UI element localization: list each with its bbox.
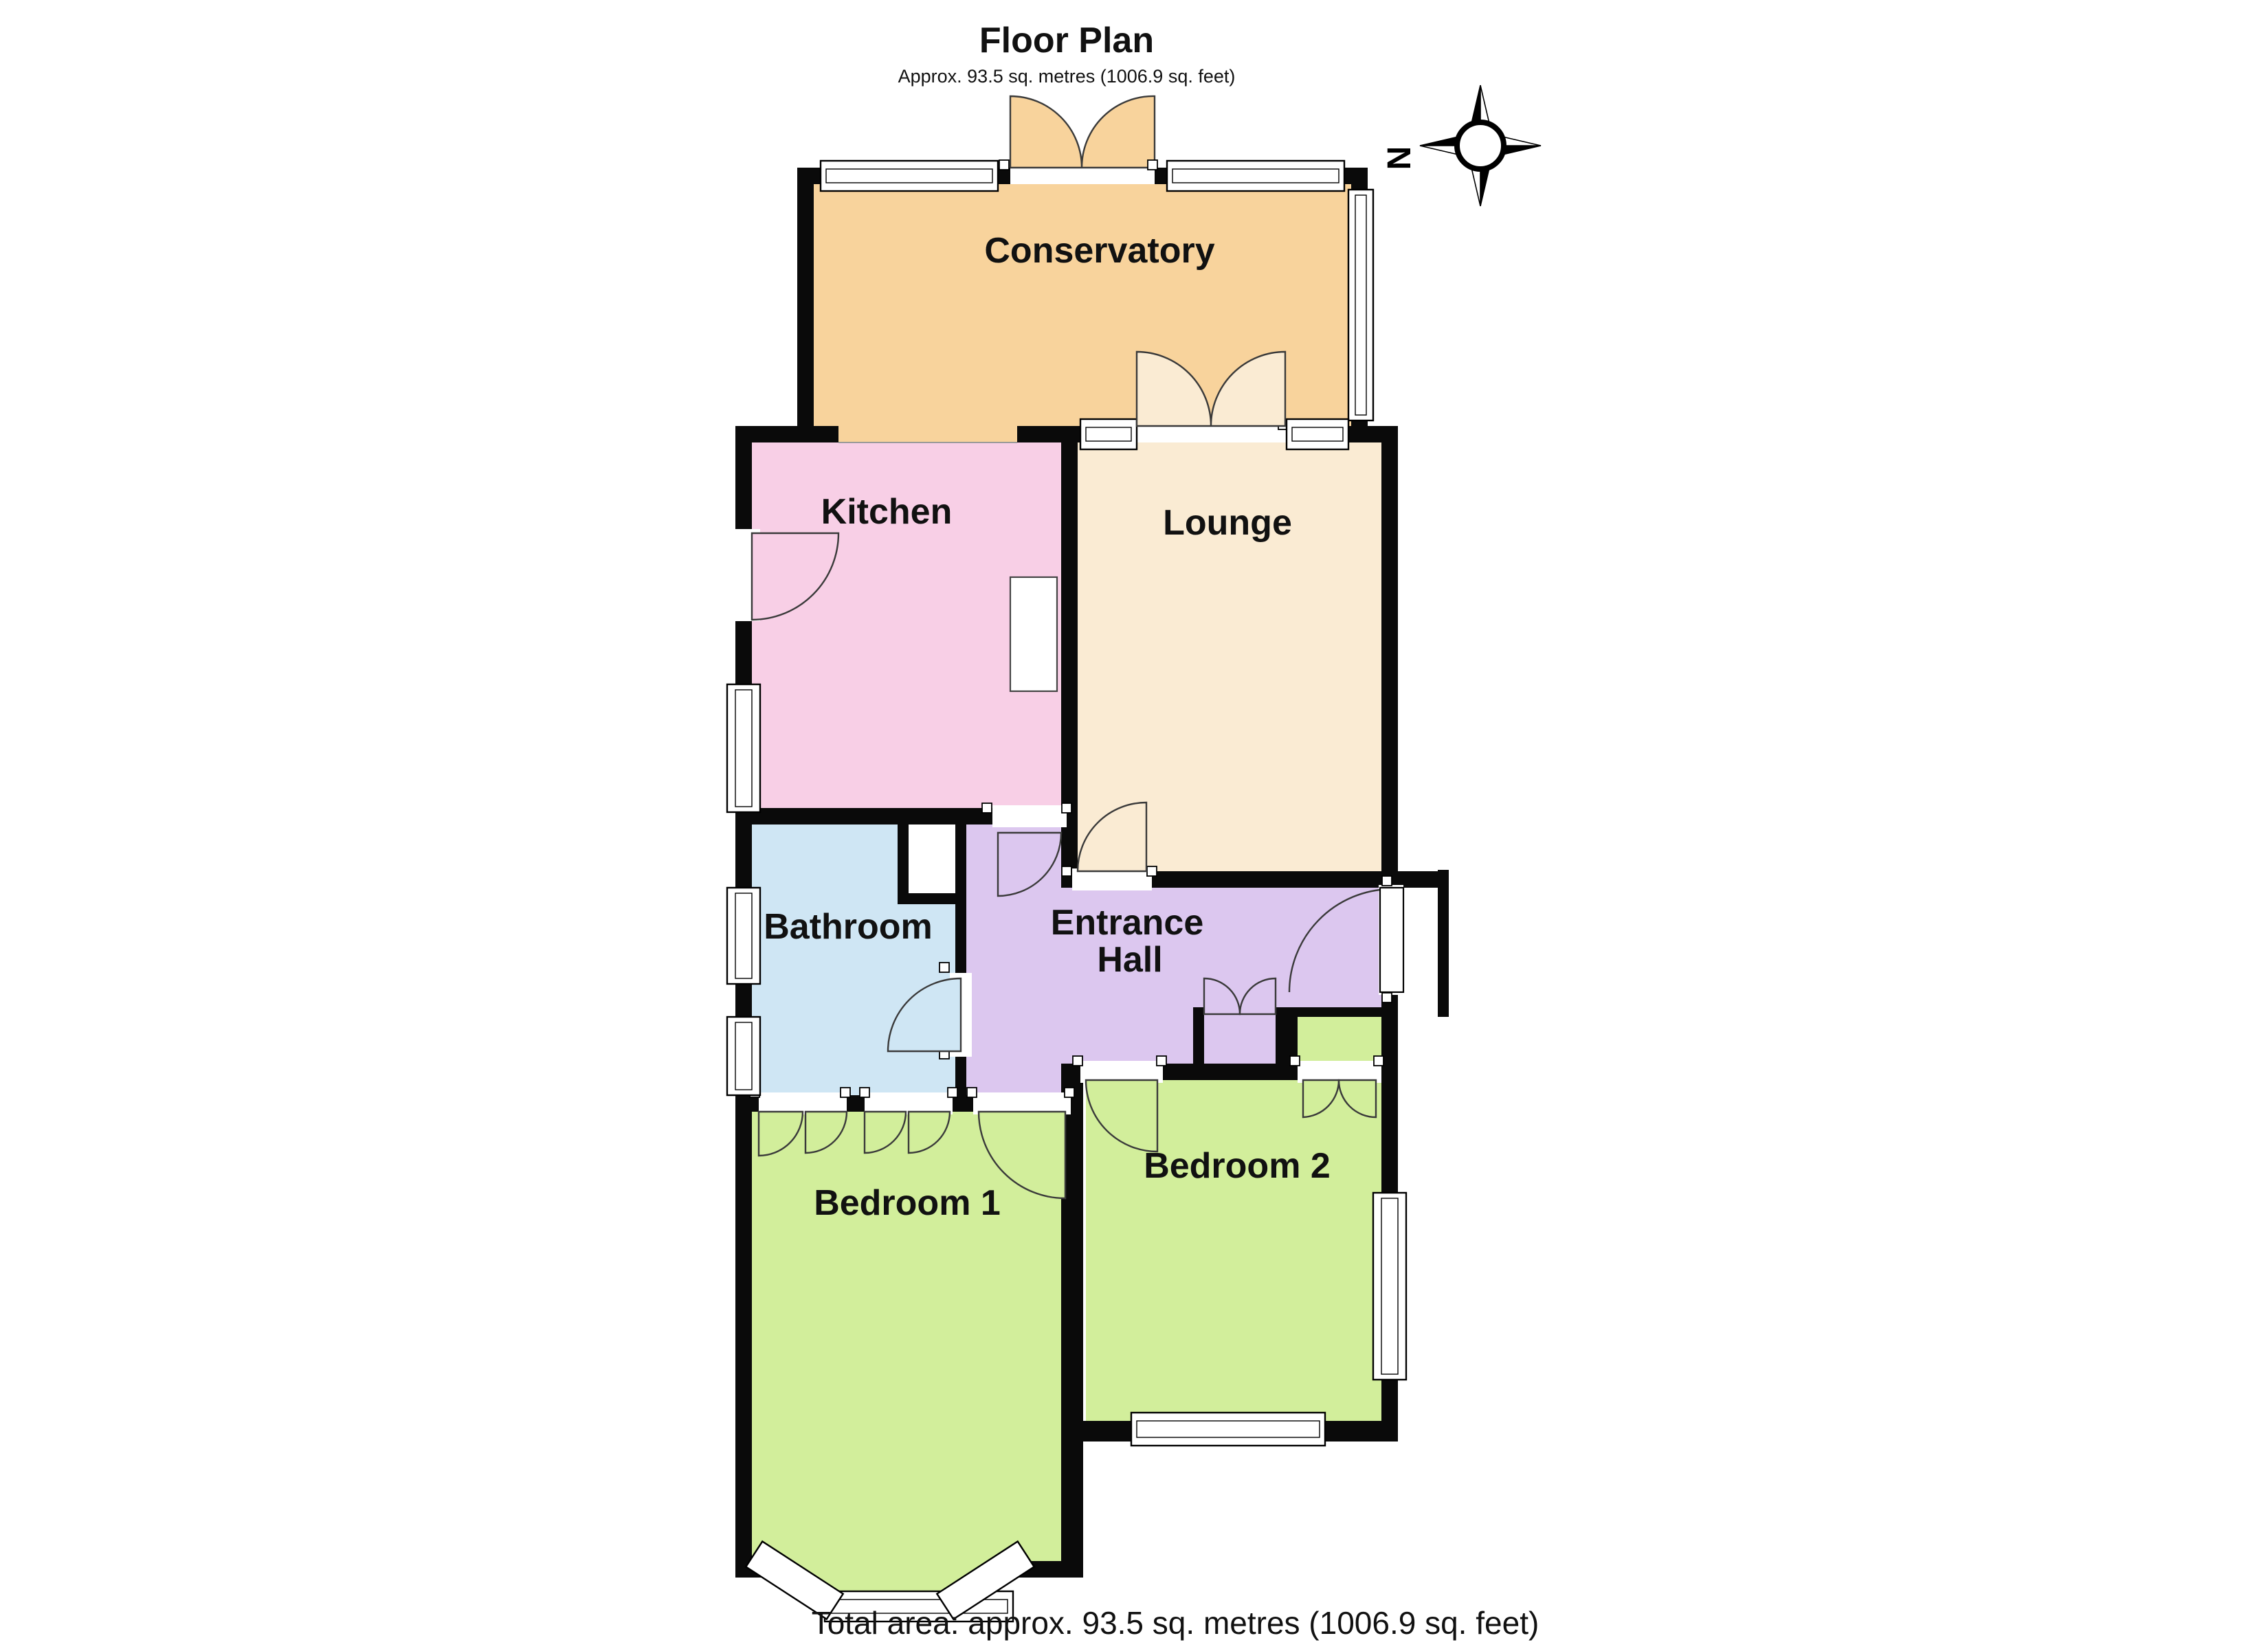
page-title: Floor Plan — [979, 21, 1154, 60]
room-label-entrance-hall-1: Entrance — [1051, 903, 1204, 943]
window-bedroom2-bottom — [1131, 1413, 1325, 1446]
total-area-text: Total area: approx. 93.5 sq. metres (100… — [812, 1605, 1539, 1641]
window-kitchen-left — [727, 684, 760, 812]
room-label-bathroom: Bathroom — [764, 907, 933, 947]
window-bedroom2-right — [1373, 1193, 1406, 1380]
window-conservatory-right — [1348, 190, 1373, 420]
window-conservatory-top-right — [1167, 161, 1344, 191]
room-label-bedroom1: Bedroom 1 — [814, 1183, 1001, 1223]
window-bathroom-left-2 — [727, 1017, 760, 1095]
kitchen-counter — [1010, 577, 1057, 691]
window-bathroom-left-1 — [727, 888, 760, 984]
room-label-kitchen: Kitchen — [821, 492, 953, 532]
room-label-entrance-hall-2: Hall — [1097, 940, 1162, 980]
floorplan: Conservatory Kitchen Lounge Bathroom Ent… — [727, 96, 1449, 1622]
door-front-leaf — [1380, 888, 1403, 992]
window-lounge-top-right — [1287, 419, 1348, 449]
page-subtitle: Approx. 93.5 sq. metres (1006.9 sq. feet… — [898, 66, 1236, 87]
compass-icon: N — [1381, 85, 1541, 206]
window-conservatory-top-left — [821, 161, 998, 191]
compass-north-label: N — [1381, 146, 1418, 170]
room-label-lounge: Lounge — [1163, 503, 1292, 543]
window-lounge-top-left — [1080, 419, 1137, 449]
room-label-conservatory: Conservatory — [984, 231, 1214, 271]
room-label-bedroom2: Bedroom 2 — [1144, 1146, 1331, 1186]
